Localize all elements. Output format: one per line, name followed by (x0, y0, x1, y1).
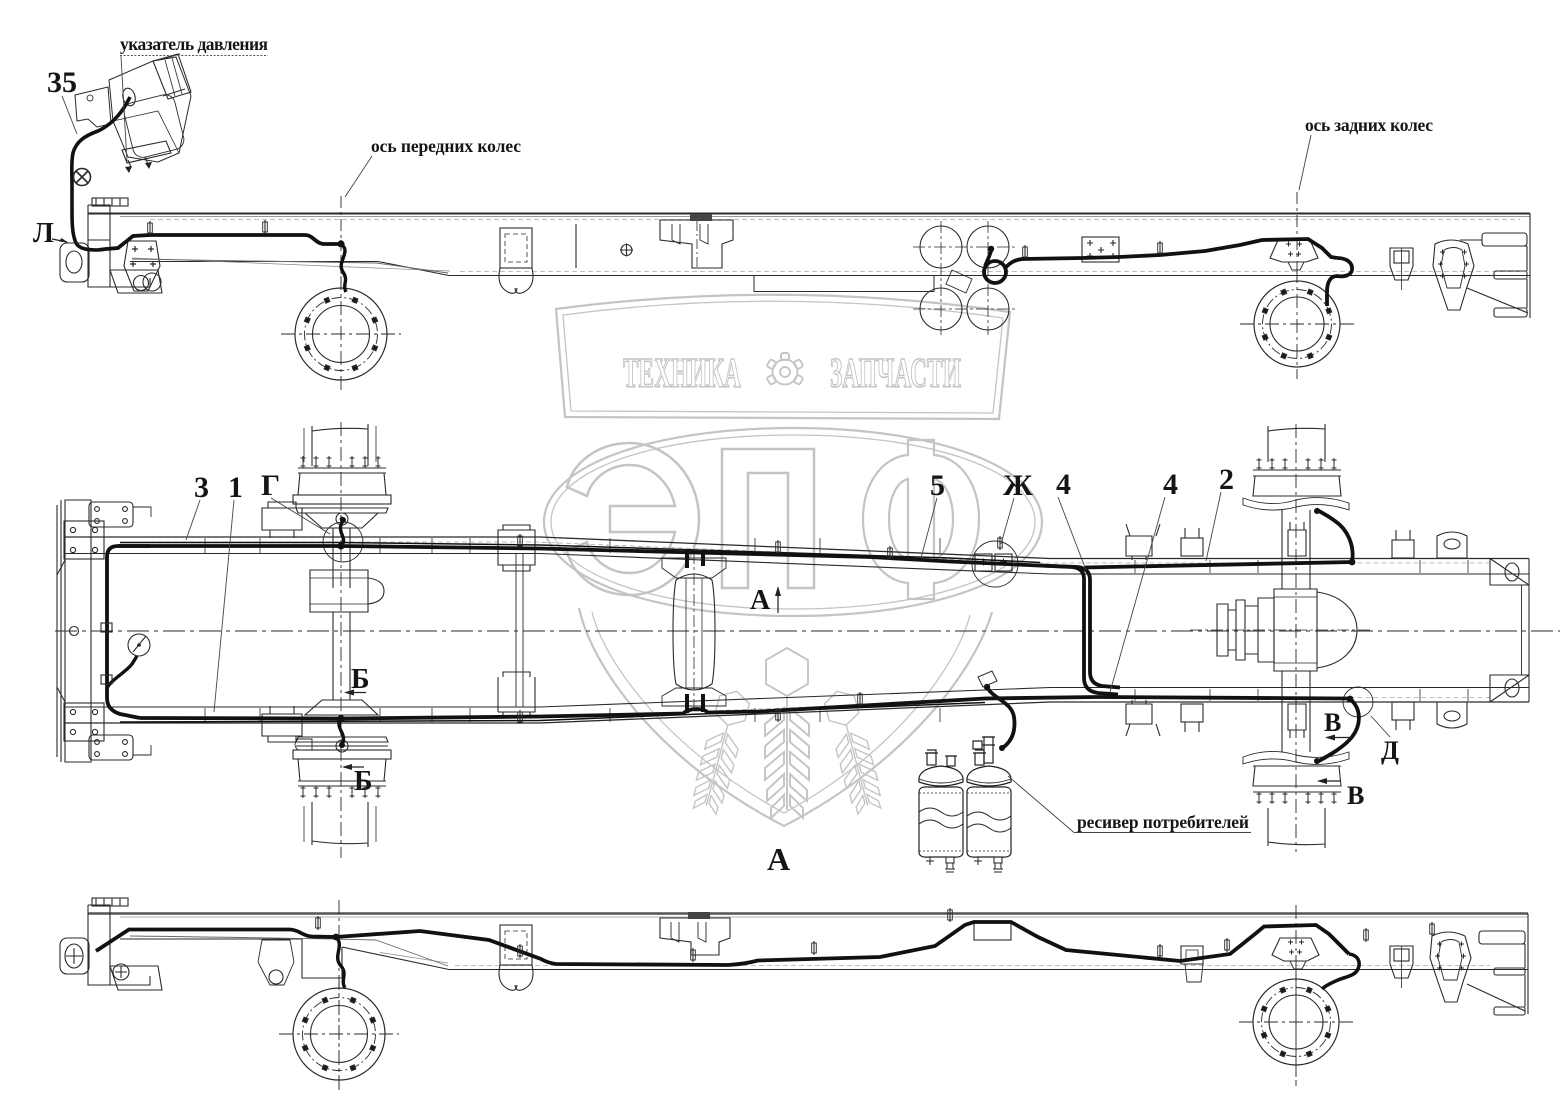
svg-text:3: 3 (194, 471, 209, 504)
svg-text:ресивер потребителей: ресивер потребителей (1077, 812, 1249, 832)
svg-text:В: В (1347, 781, 1364, 810)
svg-text:ТЕХНИКА: ТЕХНИКА (623, 351, 741, 397)
svg-text:А: А (767, 841, 790, 877)
svg-text:4: 4 (1163, 468, 1178, 501)
svg-text:5: 5 (930, 469, 945, 502)
svg-text:ЗАПЧАСТИ: ЗАПЧАСТИ (830, 351, 961, 397)
svg-text:Б: Б (354, 766, 373, 797)
svg-text:Л: Л (33, 218, 54, 249)
svg-text:Д: Д (1381, 736, 1399, 765)
svg-text:2: 2 (1219, 463, 1234, 496)
svg-text:указатель давления: указатель давления (120, 34, 268, 54)
svg-text:ось передних колес: ось передних колес (371, 136, 521, 156)
svg-text:А: А (750, 585, 771, 616)
svg-text:1: 1 (228, 471, 243, 504)
svg-text:Г: Г (261, 469, 280, 502)
svg-text:Ж: Ж (1003, 469, 1033, 502)
svg-text:35: 35 (47, 66, 77, 99)
svg-text:4: 4 (1056, 468, 1071, 501)
svg-text:В: В (1324, 708, 1341, 737)
svg-text:ось задних колес: ось задних колес (1305, 115, 1433, 135)
